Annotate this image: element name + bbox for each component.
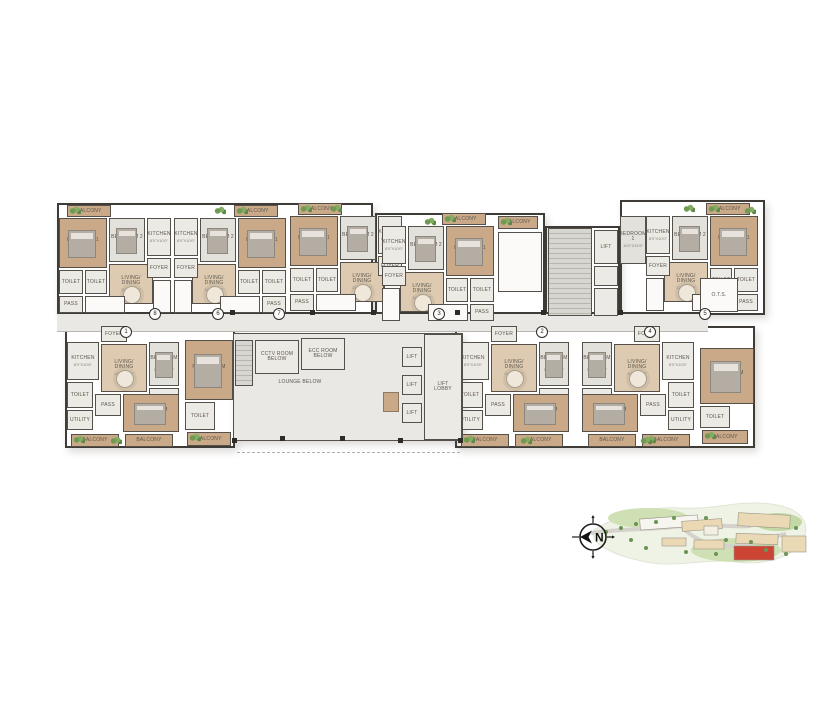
room-lounge-label: LOUNGE BELOW <box>252 376 348 388</box>
column <box>232 438 237 443</box>
lobby-desk-icon <box>383 392 399 412</box>
floor-plan-page: BALCONYBEDROOM 110'0"X11'6"BEDROOM 210'0… <box>0 0 818 719</box>
column <box>280 436 285 441</box>
room-lift: LIFT <box>402 375 422 395</box>
room-ots: O.T.S. <box>700 278 738 312</box>
room-kitchen: KITCHEN8'0"X10'0" <box>382 226 406 264</box>
bed-icon <box>194 354 222 388</box>
building <box>736 533 778 544</box>
tree-icon <box>794 526 798 530</box>
room-pass: PASS <box>290 294 314 311</box>
room-master-bedroom: M.BEDROOM11'0"X12'0" <box>123 394 179 432</box>
room-toilet: TOILET <box>85 270 107 294</box>
plant-icon <box>214 206 226 215</box>
room-label: TOILET <box>265 280 284 285</box>
room-bedroom-2: BEDROOM 210'0"X10'0" <box>340 216 376 260</box>
north-arrow-icon <box>580 531 592 544</box>
room-label: LIVING/ DINING <box>352 274 371 284</box>
room-label: BALCONY <box>472 438 497 443</box>
room-label: FOYER <box>177 266 195 271</box>
room-bedroom-1: BEDROOM 110'0"X11'6" <box>238 218 286 268</box>
room-dimension: 8'0"X10'6" <box>74 362 92 367</box>
room-label: PASS <box>491 403 505 408</box>
tree-icon <box>634 522 638 526</box>
room-cctv-room: CCTV ROOM BELOW <box>255 340 299 374</box>
room-toilet: TOILET <box>446 278 468 302</box>
room-bedroom-2: BEDROOM 210'0"X10'0" <box>200 218 236 262</box>
room-label: FOYER <box>150 266 168 271</box>
tree-icon <box>629 538 633 542</box>
room-master-bedroom: M.BEDROOM11'0"X12'0" <box>582 394 638 432</box>
room-label: TOILET <box>71 393 90 398</box>
room-dimension: 8'0"X10'6" <box>669 362 687 367</box>
room-dimension: 8'0"X10'0" <box>150 238 168 243</box>
plant-icon <box>444 214 456 223</box>
room-ecc-room: ECC ROOM BELOW <box>301 338 345 370</box>
room-pass: PASS <box>640 394 666 416</box>
room-label: PASS <box>64 302 78 307</box>
room-label: LIVING/ DINING <box>204 276 223 286</box>
plant-icon <box>640 436 652 445</box>
room-label: LIVING/ DINING <box>121 276 140 286</box>
room-kitchen: KITCHEN8'0"X10'6" <box>662 342 694 380</box>
room-label: KITCHEN <box>174 232 197 237</box>
tree-icon <box>619 526 623 530</box>
room-label: BALCONY <box>653 438 678 443</box>
room-label: FOYER <box>649 264 667 269</box>
building <box>782 536 806 552</box>
room-pass: PASS <box>59 296 83 313</box>
room-label: CCTV ROOM BELOW <box>261 352 293 362</box>
tree-icon <box>714 552 718 556</box>
bed-icon <box>116 228 137 254</box>
north-label: N <box>595 531 604 545</box>
room-label: BALCONY <box>82 438 107 443</box>
bed-icon <box>588 352 606 378</box>
room-label: KITCHEN <box>666 356 689 361</box>
unit-number-marker: 4 <box>644 326 656 338</box>
room-label: LIVING/ DINING <box>627 360 646 370</box>
room-label: KITCHEN <box>71 356 94 361</box>
tree-icon <box>724 538 728 542</box>
room-bedroom-1: BEDROOM 110'0"X11'6" <box>59 218 107 268</box>
unit-number-marker: 6 <box>212 308 224 320</box>
room-label: TOILET <box>672 393 691 398</box>
bed-icon <box>719 228 747 257</box>
room-label: LIVING/ DINING <box>412 284 431 294</box>
room-foyer: FOYER <box>382 266 406 286</box>
tree-icon <box>784 552 788 556</box>
plant-icon <box>704 431 716 440</box>
plant-icon <box>463 435 475 444</box>
room-master-bedroom: M.BEDROOM11'0"X12'0" <box>700 348 754 404</box>
room-label: TOILET <box>318 278 337 283</box>
room-label: LIFT <box>600 245 611 250</box>
tree-icon <box>684 550 688 554</box>
room-bedroom-2: BEDROOM 210'0"X10'6" <box>149 342 179 386</box>
bed-icon <box>710 361 741 393</box>
dining-table-icon <box>123 286 141 304</box>
room-pass: PASS <box>470 304 494 321</box>
room-void <box>498 232 542 292</box>
room-label: FOYER <box>495 332 513 337</box>
room-toilet: TOILET <box>185 402 215 430</box>
plant-icon <box>110 436 122 445</box>
bed-icon <box>415 236 436 262</box>
room-duct <box>594 266 618 286</box>
unit-number-marker: 3 <box>433 308 445 320</box>
room-label: PASS <box>295 300 309 305</box>
unit-number-marker: 5 <box>699 308 711 320</box>
room-label: TOILET <box>737 278 756 283</box>
room-label: TOILET <box>62 280 81 285</box>
room-label: UTILITY <box>671 418 691 423</box>
room-label: PASS <box>101 403 115 408</box>
highlighted-building <box>734 546 774 560</box>
room-void <box>174 280 192 313</box>
column <box>398 438 403 443</box>
tree-icon <box>672 516 676 520</box>
bed-icon <box>679 226 700 252</box>
room-toilet: TOILET <box>700 406 730 428</box>
room-dimension: 8'0"X10'0" <box>385 246 403 251</box>
room-master-bedroom: M.BEDROOM11'0"X12'6" <box>185 340 233 400</box>
room-label: KITCHEN <box>147 232 170 237</box>
room-dimension: 8'0"X10'0" <box>649 236 667 241</box>
room-living-dining: LIVING/ DINING11'0"X18'6" <box>101 344 147 392</box>
dining-table-icon <box>629 370 647 388</box>
room-kitchen: KITCHEN8'0"X10'0" <box>646 216 670 254</box>
plant-icon <box>744 206 756 215</box>
tree-icon <box>764 548 768 552</box>
room-void <box>382 288 400 321</box>
bed-icon <box>207 228 228 254</box>
room-kitchen: KITCHEN8'0"X10'0" <box>147 218 171 256</box>
room-label: LIVING/ DINING <box>504 360 523 370</box>
building <box>694 540 724 549</box>
column <box>455 310 460 315</box>
room-toilet: TOILET <box>290 268 314 292</box>
room-void <box>646 278 664 311</box>
bed-icon <box>134 403 166 425</box>
building <box>662 538 686 546</box>
room-label: PASS <box>646 403 660 408</box>
room-label: FOYER <box>385 274 403 279</box>
room-void <box>85 296 125 313</box>
room-label: PASS <box>267 302 281 307</box>
lower-dashed-line <box>237 452 460 453</box>
room-label: BEDROOM 1 <box>620 232 646 242</box>
plant-icon <box>520 436 532 445</box>
room-foyer: FOYER <box>147 258 171 278</box>
tree-icon <box>644 546 648 550</box>
room-label: TOILET <box>473 288 492 293</box>
room-utility: UTILITY <box>67 410 93 430</box>
tree-icon <box>704 516 708 520</box>
unit-number-marker: 7 <box>273 308 285 320</box>
room-void <box>316 294 356 311</box>
unit-number-marker: 1 <box>120 326 132 338</box>
room-lift-lobby: LIFT LOBBY <box>424 334 462 440</box>
room-label: TOILET <box>448 288 467 293</box>
room-pass: PASS <box>95 394 121 416</box>
bed-icon <box>299 228 327 257</box>
room-label: LIVING/ DINING <box>114 360 133 370</box>
column <box>371 310 376 315</box>
dining-table-icon <box>506 370 524 388</box>
room-label: KITCHEN <box>646 230 669 235</box>
room-label: TOILET <box>240 280 259 285</box>
room-label: LIFT LOBBY <box>434 382 452 392</box>
room-master-bedroom: M.BEDROOM11'0"X12'0" <box>513 394 569 432</box>
room-bedroom-2: BEDROOM 210'0"X10'6" <box>539 342 569 386</box>
room-dimension: 8'0"X10'6" <box>464 362 482 367</box>
plant-icon <box>330 204 342 213</box>
room-lift: LIFT <box>594 230 618 264</box>
room-label: TOILET <box>461 393 480 398</box>
plant-icon <box>300 204 312 213</box>
room-bedroom-2: BEDROOM 210'0"X10'0" <box>672 216 708 260</box>
room-void <box>220 296 260 313</box>
room-foyer: FOYER <box>174 258 198 278</box>
plant-icon <box>708 204 720 213</box>
bed-icon <box>524 403 556 425</box>
building <box>704 526 718 535</box>
site-key-plan <box>586 488 812 580</box>
room-label: KITCHEN <box>382 240 405 245</box>
room-label: LIFT <box>406 383 417 388</box>
column <box>340 436 345 441</box>
tree-icon <box>654 520 658 524</box>
room-toilet: TOILET <box>262 270 286 294</box>
bed-icon <box>155 352 173 378</box>
room-living-dining: LIVING/ DINING11'0"X18'6" <box>491 344 537 392</box>
room-foyer: FOYER <box>491 326 517 342</box>
room-dimension: 8'0"X10'0" <box>177 238 195 243</box>
room-label: BALCONY <box>712 435 737 440</box>
room-living-dining: LIVING/ DINING11'0"X18'6" <box>614 344 660 392</box>
room-toilet: TOILET <box>67 382 93 408</box>
bed-icon <box>455 238 483 267</box>
column <box>541 310 546 315</box>
north-compass: N <box>570 514 616 560</box>
tree-icon <box>749 540 753 544</box>
plant-icon <box>236 206 248 215</box>
room-bedroom-1: BEDROOM 110'0"X11'6" <box>620 216 646 264</box>
room-foyer: FOYER <box>646 256 670 276</box>
bed-icon <box>68 230 96 259</box>
room-kitchen: KITCHEN8'0"X10'0" <box>174 218 198 256</box>
column <box>618 310 623 315</box>
room-dimension: 10'0"X11'6" <box>623 243 643 248</box>
room-toilet: TOILET <box>668 382 694 408</box>
room-label: TOILET <box>87 280 106 285</box>
room-label: PASS <box>475 310 489 315</box>
dining-table-icon <box>116 370 134 388</box>
room-label: ECC ROOM BELOW <box>308 349 337 359</box>
room-label: LIVING/ DINING <box>676 274 695 284</box>
bed-icon <box>593 403 625 425</box>
room-toilet: TOILET <box>59 270 83 294</box>
room-staircase <box>548 228 592 316</box>
room-utility: UTILITY <box>668 410 694 430</box>
room-toilet: TOILET <box>316 268 338 292</box>
room-label: KITCHEN <box>461 356 484 361</box>
room-label: BALCONY <box>136 438 161 443</box>
room-label: BALCONY <box>599 438 624 443</box>
room-label: TOILET <box>191 414 210 419</box>
room-kitchen: KITCHEN8'0"X10'6" <box>67 342 99 380</box>
column <box>310 310 315 315</box>
bed-icon <box>347 226 368 252</box>
room-balcony: BALCONY <box>588 434 636 447</box>
room-label: LIFT <box>406 411 417 416</box>
room-pass <box>594 288 618 316</box>
room-bedroom-2: BEDROOM 210'0"X10'0" <box>408 226 444 270</box>
column <box>230 310 235 315</box>
room-bedroom-1: BEDROOM 110'0"X11'6" <box>710 216 758 266</box>
room-label: O.T.S. <box>711 293 726 298</box>
unit-number-marker: 8 <box>149 308 161 320</box>
room-lift: LIFT <box>402 403 422 423</box>
room-label: TOILET <box>706 415 725 420</box>
building <box>738 513 791 529</box>
room-label: LIFT <box>406 355 417 360</box>
plant-icon <box>73 435 85 444</box>
room-staircase <box>235 340 253 386</box>
bed-icon <box>545 352 563 378</box>
room-bedroom-1: BEDROOM 110'0"X11'6" <box>446 226 494 276</box>
room-bedroom-1: BEDROOM 110'0"X11'6" <box>290 216 338 266</box>
room-label: UTILITY <box>70 418 90 423</box>
room-label: LOUNGE BELOW <box>279 380 322 385</box>
room-bedroom-2: BEDROOM 210'0"X10'6" <box>582 342 612 386</box>
dining-table-icon <box>354 284 372 302</box>
room-pass: PASS <box>485 394 511 416</box>
room-toilet: TOILET <box>470 278 494 302</box>
room-toilet: TOILET <box>238 270 260 294</box>
room-lift: LIFT <box>402 347 422 367</box>
room-bedroom-2: BEDROOM 210'0"X10'0" <box>109 218 145 262</box>
bed-icon <box>247 230 275 259</box>
plant-icon <box>189 433 201 442</box>
unit-number-marker: 2 <box>536 326 548 338</box>
room-label: PASS <box>739 300 753 305</box>
plant-icon <box>500 217 512 226</box>
plant-icon <box>424 217 436 226</box>
plant-icon <box>69 206 81 215</box>
plant-icon <box>683 204 695 213</box>
room-balcony: BALCONY <box>125 434 173 447</box>
room-label: TOILET <box>293 278 312 283</box>
